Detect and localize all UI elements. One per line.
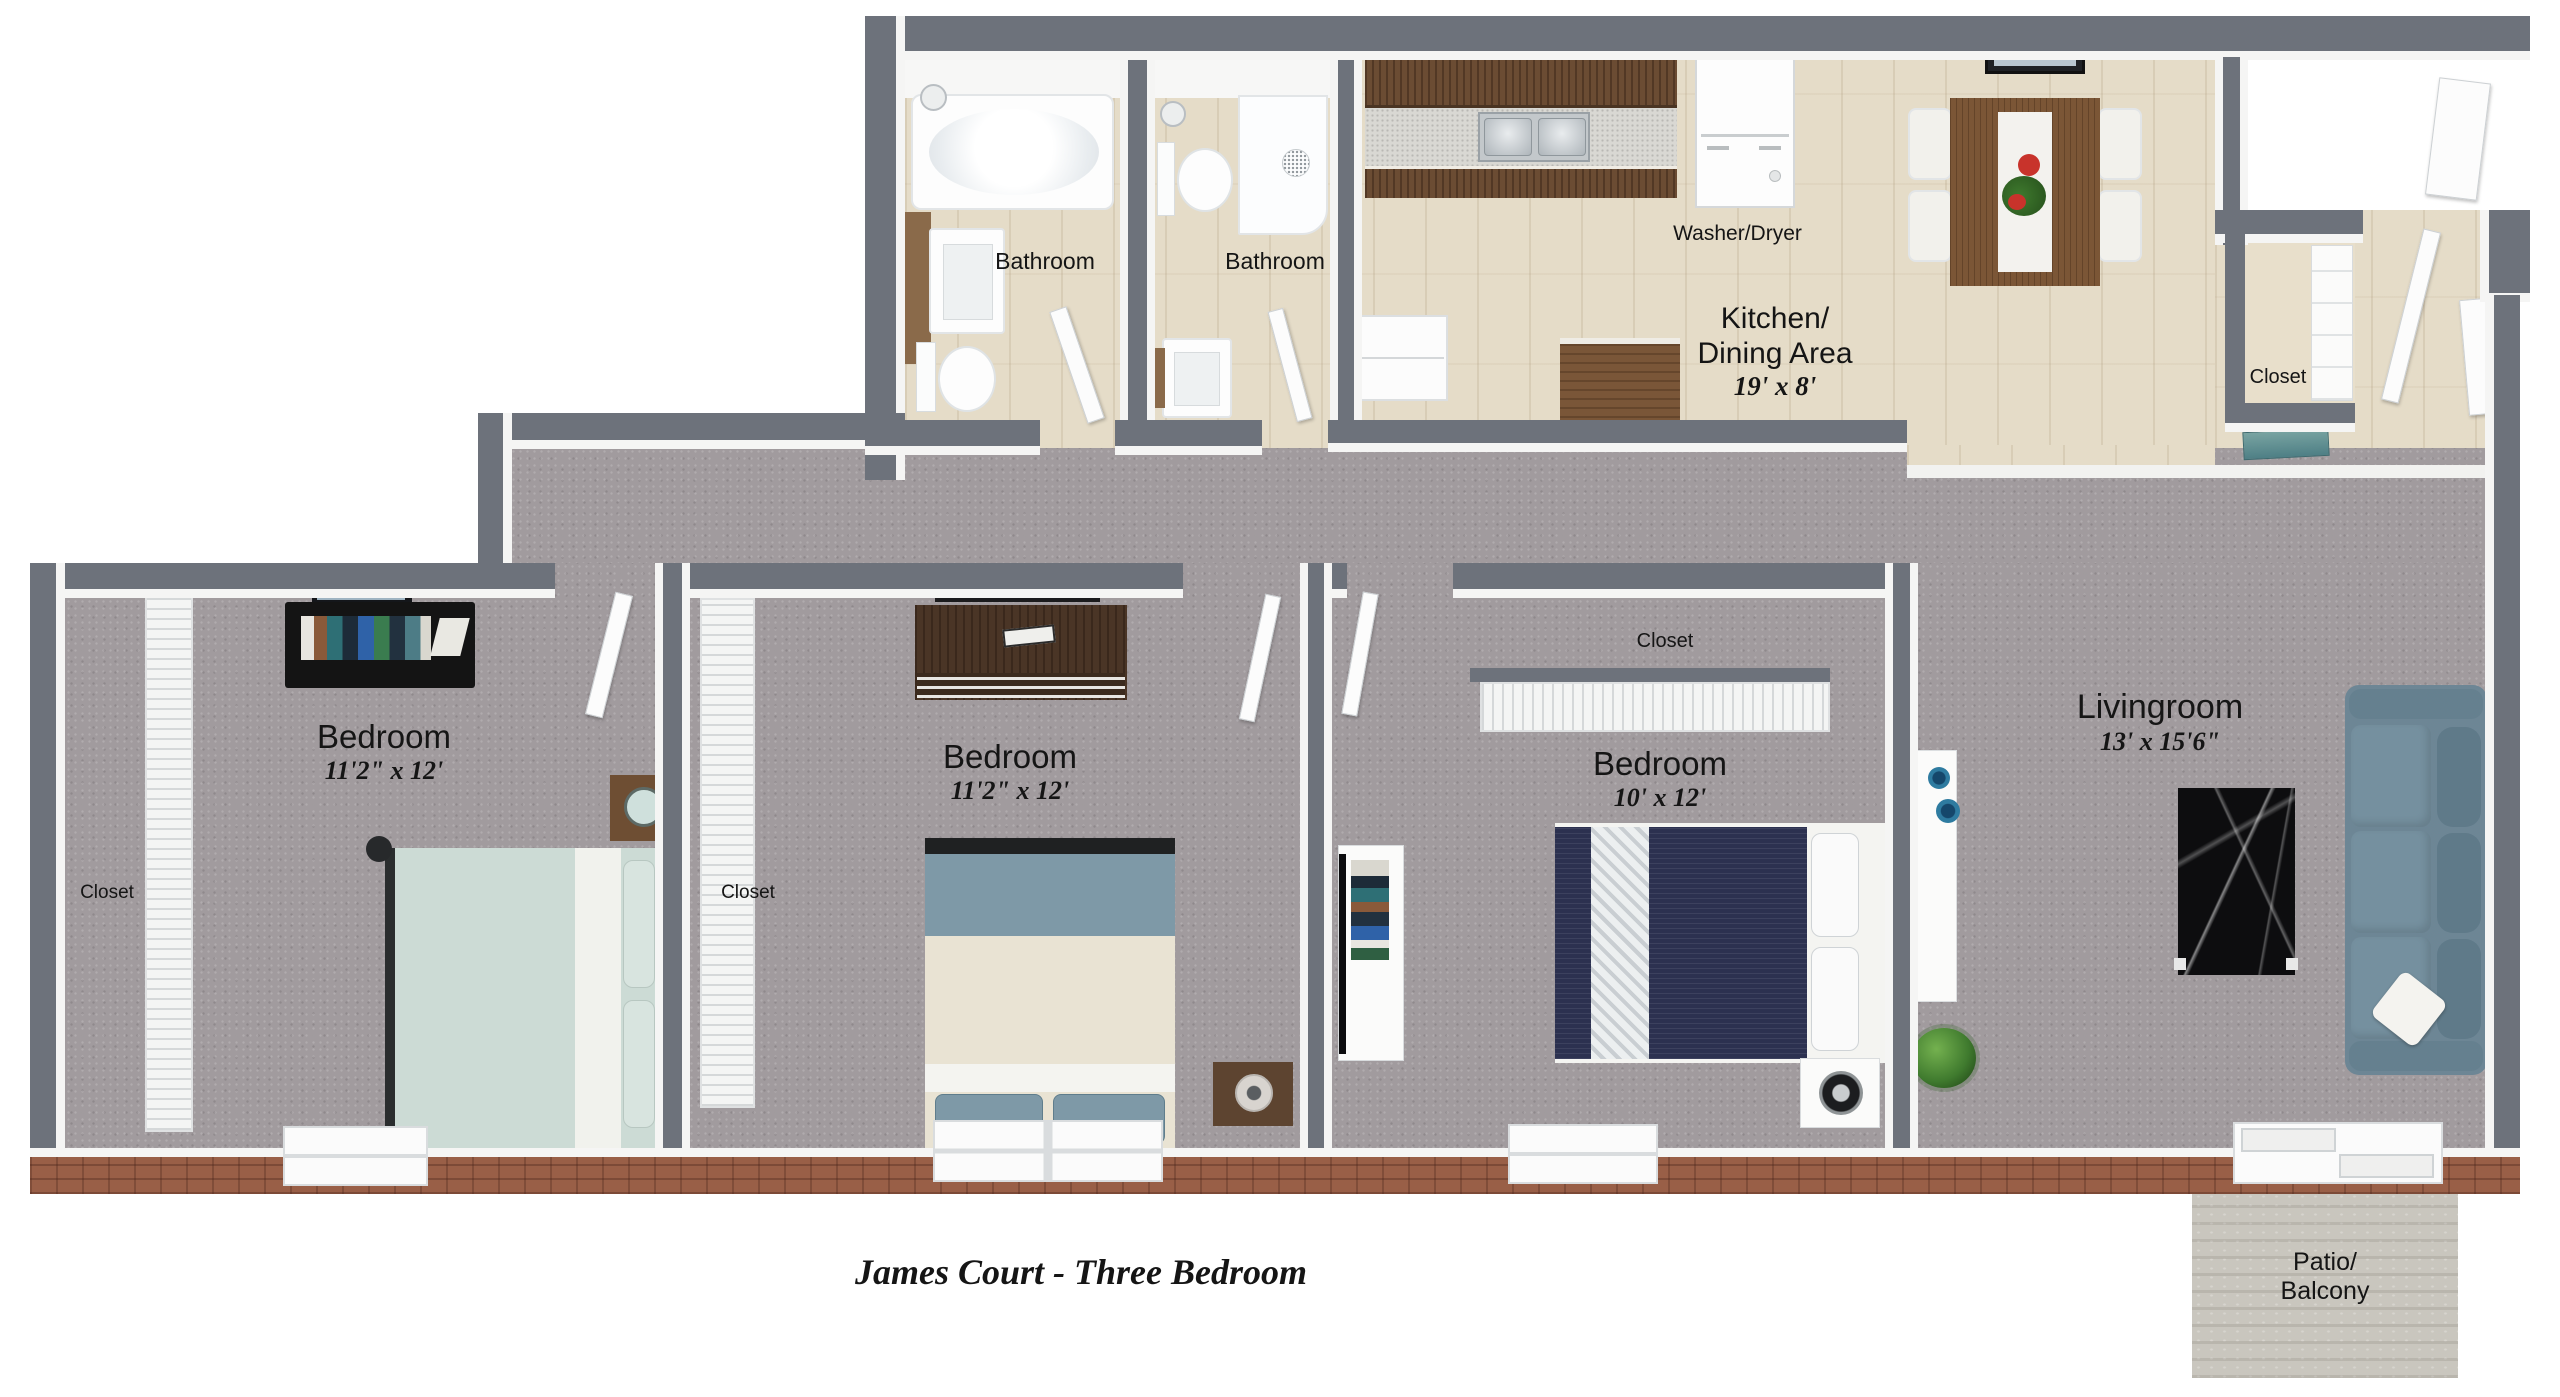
patio-label-line2: Balcony [2225,1277,2425,1306]
bathroom2-sink [1162,338,1232,418]
refrigerator [1352,315,1448,401]
bedroom1-dims: 11'2" x 12' [264,756,504,786]
wall-right [2485,295,2520,1155]
livingroom-label: Livingroom 13' x 15'6" [2030,688,2290,757]
dresser-photo-frames [1002,624,1056,647]
bedroom3-label: Bedroom 10' x 12' [1540,745,1780,813]
bathroom1-label: Bathroom [975,248,1115,274]
bedroom2-label: Bedroom 11'2" x 12' [890,738,1130,806]
right-top-window [2425,77,2491,200]
bedroom3-bed [1555,823,1885,1063]
bedroom1-closet-label: Closet [62,882,152,904]
bedroom2-window [933,1120,1163,1182]
wall-left [30,563,65,1155]
patio-label: Patio/ Balcony [2225,1248,2425,1306]
coffee-table-leg [2286,958,2298,970]
bed1-corner-knob [366,836,392,862]
sofa-armrest-bottom [2349,1041,2483,1071]
wall-bedroom2-top [658,563,1183,598]
bathtub-basin [929,109,1099,195]
wall-corridor-stub [478,413,512,565]
shower-drain [1282,149,1310,177]
sofa-armrest-top [2349,689,2483,719]
bathroom2-wall-face [1155,60,1330,98]
dining-chair [1908,108,1952,180]
bedroom3-name: Bedroom [1540,745,1780,783]
bedroom2-dresser [915,605,1127,700]
bed2-footboard [925,838,1175,854]
kitchen-label-line1: Kitchen/ [1640,302,1910,337]
bathroom2-toilet-bowl [1177,148,1233,212]
kitchen-dims: 19' x 8' [1640,371,1910,402]
dining-chair [1908,190,1952,262]
patio-label-line1: Patio/ [2225,1248,2425,1277]
bathroom1-toilet-bowl [938,346,996,412]
bedroom1-bed [385,848,657,1148]
bedroom3-closet-label: Closet [1585,630,1745,653]
plant [1912,1028,1976,1088]
kitchen-sink-basin-left [1484,118,1532,156]
table-flowers-red2 [2008,194,2026,210]
sofa-back-cushion [2437,727,2481,827]
entry-closet-label: Closet [2218,366,2338,389]
bathroom2-vanity-wood [1155,348,1165,408]
bedroom3-closet-doors [1480,682,1830,732]
bedroom2-bed [925,838,1175,1148]
floor-wood-dining-flow [1907,445,2215,467]
tv-decor-vase [1936,799,1960,823]
washer-dryer [1695,40,1795,208]
bed1-sheet [575,848,621,1148]
bed3-throw [1591,827,1649,1059]
bathroom1-toilet-tank [916,342,936,412]
kitchen-lower-cabinets [1365,166,1677,198]
kitchen-sink-basin-right [1538,118,1586,156]
coffee-table-leg [2174,958,2186,970]
dining-chair [2098,108,2142,180]
bed3-pillow [1811,833,1859,937]
sliding-door-pane [2339,1154,2434,1178]
bathroom2-mirror [1160,101,1186,127]
bedroom3-nightstand [1800,1058,1880,1128]
bedroom1-bookshelf [285,602,475,688]
wall-bedroom3-closet-front [1470,668,1830,682]
bed2-blanket-band [925,854,1175,936]
bed2-sheet [925,1064,1175,1092]
washer-control2 [1759,146,1781,150]
shower [1238,95,1328,235]
plan-title: James Court - Three Bedroom [731,1252,1431,1293]
bedroom3-console-books [1351,860,1389,960]
wall-top [865,16,2530,60]
washer-dryer-label: Washer/Dryer [1655,222,1820,246]
entry-door-mat [2242,428,2329,460]
bedroom1-name: Bedroom [264,718,504,756]
bookshelf-book-leaning [430,618,469,656]
sofa-back-cushion [2437,939,2481,1039]
livingroom-name: Livingroom [2030,688,2290,727]
bedroom3-lamp [1819,1071,1863,1115]
wall-corridor-top [478,413,905,449]
dining-table [1950,98,2100,286]
bedroom2-nightstand [1213,1062,1293,1126]
bookshelf-books [301,616,431,660]
table-flowers-red [2018,154,2040,176]
bathroom2-label: Bathroom [1205,248,1345,274]
wall-bathrooms-bottom-b [1115,420,1262,455]
sliding-door-pane [2241,1128,2336,1152]
bathroom2-sink-basin [1174,352,1220,406]
sofa-seat [2351,831,2431,933]
bed1-frame-edge [385,848,395,1148]
bedroom2-dims: 11'2" x 12' [890,776,1130,806]
washer-lid [1701,134,1789,137]
bedroom1-window [283,1126,428,1186]
bedroom3-tv [1339,854,1346,1054]
bathroom1-sink [929,228,1005,334]
bathroom2-toilet-tank [1157,142,1175,216]
wall-bedroom3-right [1885,563,1918,1155]
bedroom1-closet-doors [145,596,193,1132]
dresser-drawers [917,673,1125,698]
bedroom1-label: Bedroom 11'2" x 12' [264,718,504,786]
wall-bedroom1-2-divider [655,563,690,1155]
sofa-back-cushion [2437,833,2481,933]
wall-bedroom2-3-divider [1300,563,1332,1155]
bedroom3-media-console [1338,845,1404,1061]
sofa-seat [2351,725,2431,827]
kitchen-label-line2: Dining Area [1640,337,1910,372]
sofa [2345,685,2487,1075]
kitchen-label: Kitchen/ Dining Area 19' x 8' [1640,302,1910,402]
wall-bedroom3-top [1453,563,1888,598]
bedroom2-lamp [1235,1074,1273,1112]
washer-control [1707,146,1729,150]
bathtub [911,94,1114,210]
wall-entry-closet-bottom [2225,403,2355,432]
bed1-pillow [623,860,655,988]
bedroom3-window [1508,1124,1658,1184]
dining-chair [2098,190,2142,262]
wall-entry-closet-left [2225,210,2245,432]
wall-bedroom1-top [30,563,555,598]
entry-threshold [1907,465,2485,478]
kitchen-sink [1478,112,1590,162]
bedroom2-closet-doors [700,598,755,1108]
bed1-pillow [623,1000,655,1128]
coffee-table [2178,788,2295,975]
washer-knob [1769,170,1781,182]
bedroom3-dims: 10' x 12' [1540,783,1780,813]
bed3-pillow [1811,947,1859,1051]
wall-topsection-left [865,16,905,480]
livingroom-dims: 13' x 15'6" [2030,727,2290,757]
wall-entry-right-stub [2480,210,2530,302]
wall-bathrooms-bottom-a [865,420,1040,455]
refrigerator-seam [1358,357,1444,359]
floor-plan: Bathroom Bathroom Washer/Dryer Kitchen/ … [0,0,2560,1397]
wall-kitchen-bottom [1328,420,1907,452]
bedroom2-name: Bedroom [890,738,1130,776]
bedroom2-closet-label: Closet [698,882,798,904]
tv-decor-vase [1928,767,1950,789]
wall-bathroom-divider [1120,60,1155,420]
patio-sliding-door [2233,1122,2443,1184]
bathroom1-mirror [920,84,947,111]
